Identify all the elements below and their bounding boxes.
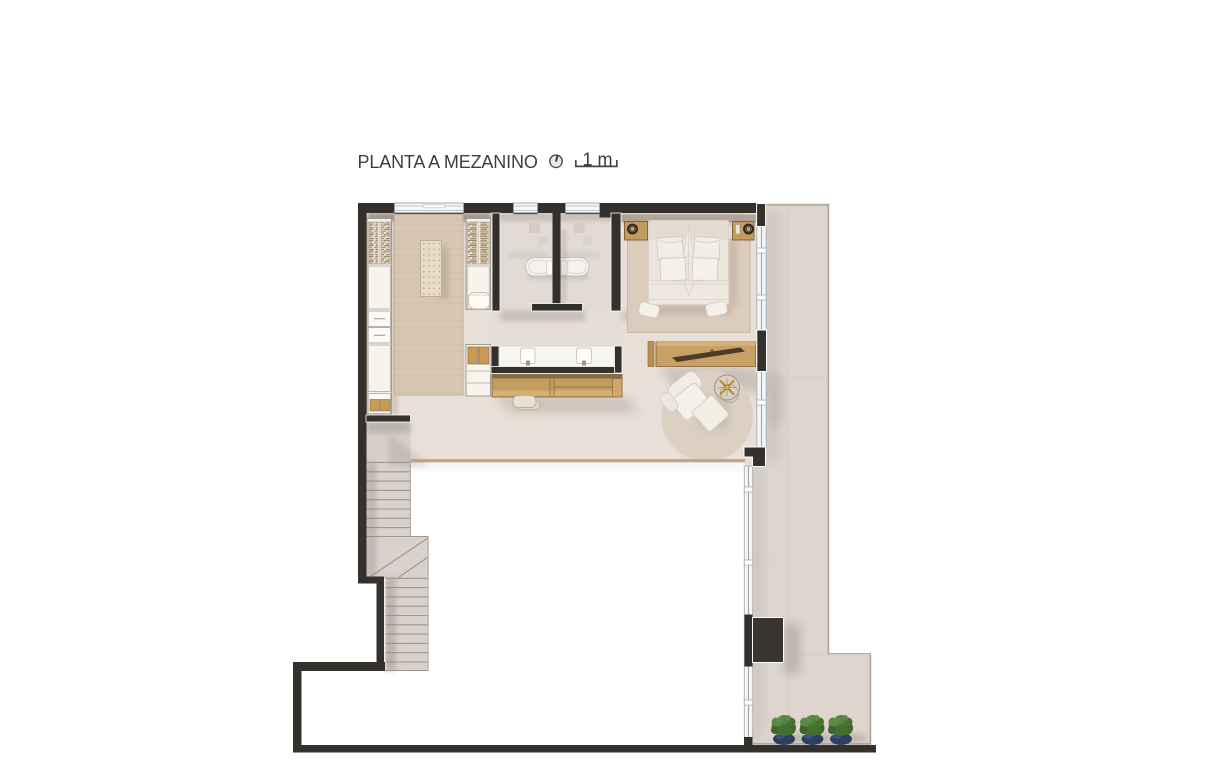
svg-text:PLANTA A MEZANINO: PLANTA A MEZANINO — [358, 152, 538, 172]
svg-text:1 m: 1 m — [583, 150, 613, 170]
